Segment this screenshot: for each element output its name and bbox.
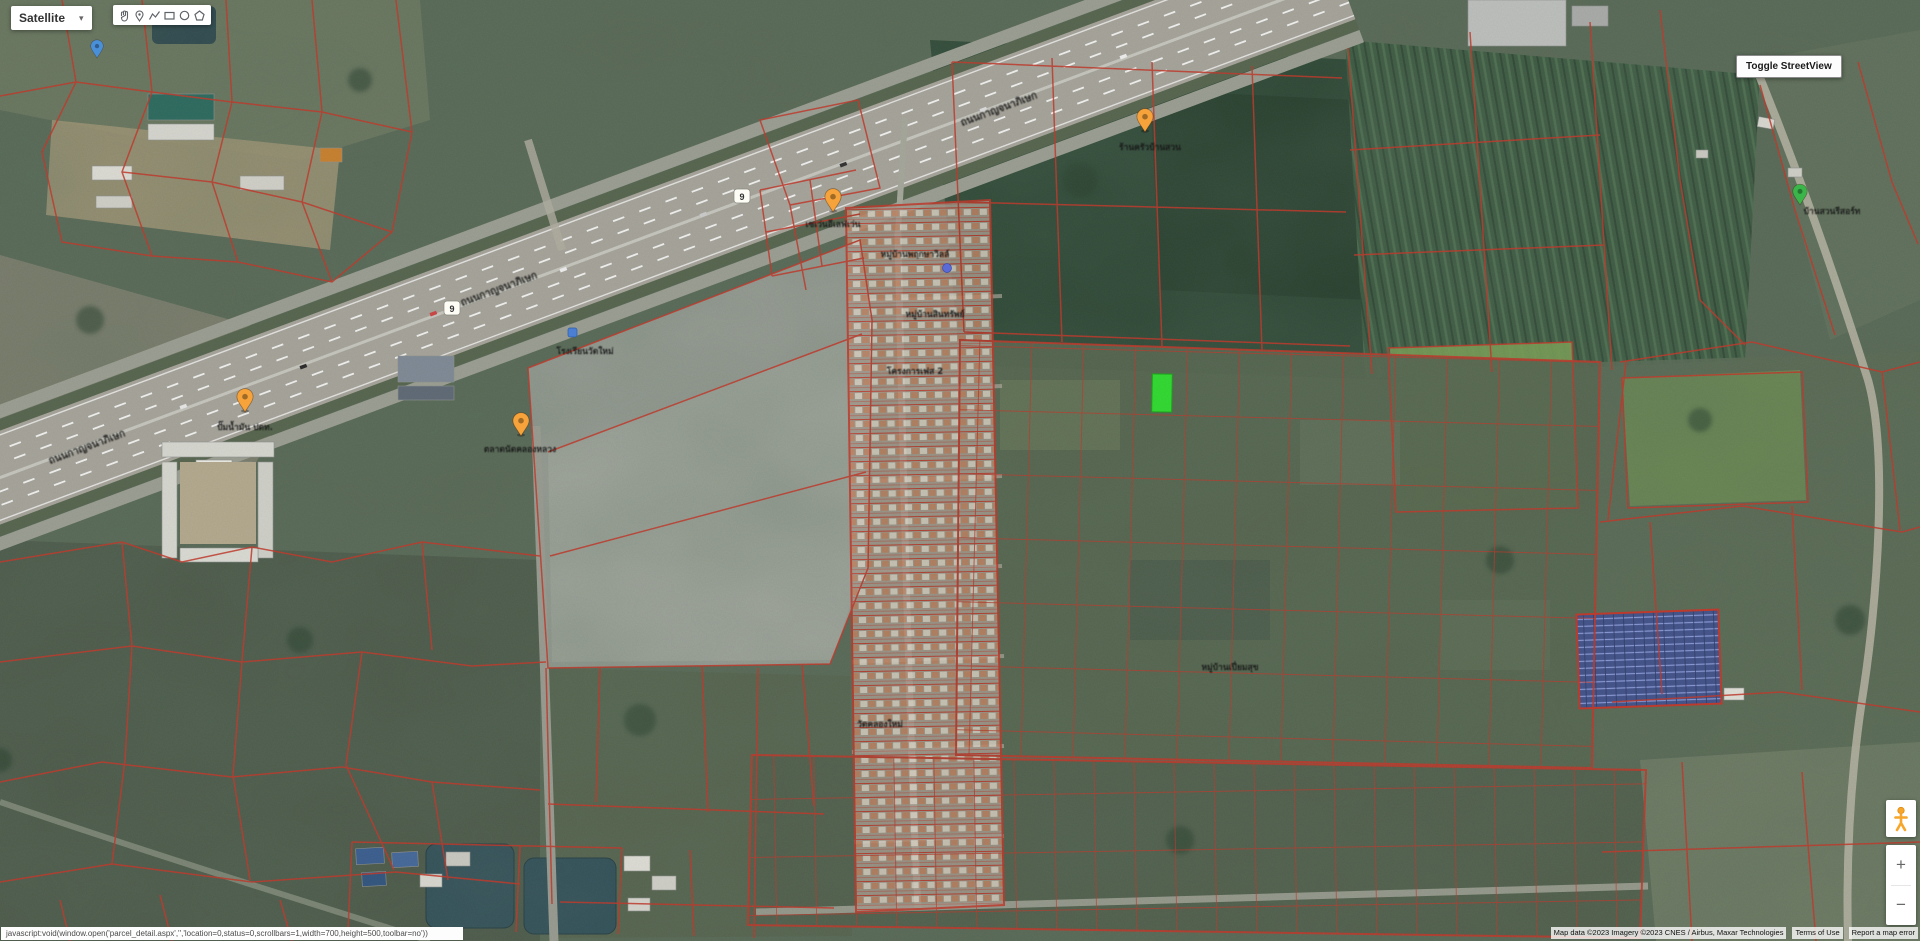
map-type-label: Satellite bbox=[19, 11, 65, 25]
toggle-streetview-button[interactable]: Toggle StreetView bbox=[1736, 55, 1842, 78]
browser-status-bar: javascript:void(window.open('parcel_deta… bbox=[1, 927, 463, 940]
zoom-control: + − bbox=[1886, 845, 1916, 925]
circle-tool-button[interactable] bbox=[177, 6, 192, 24]
drawing-toolbar bbox=[113, 5, 211, 25]
poi-label: โรงเรียนวัดใหม่ bbox=[555, 346, 613, 357]
map-canvas[interactable]: ถนนกาญจนาภิเษก ถนนกาญจนาภิเษก ถนนกาญจนาภ… bbox=[0, 0, 1920, 941]
route-shield-number: 9 bbox=[739, 192, 744, 202]
status-bar-text: javascript:void(window.open('parcel_deta… bbox=[6, 929, 428, 938]
map-data-credit: Map data ©2023 Imagery ©2023 CNES / Airb… bbox=[1551, 927, 1787, 939]
polygon-tool-button[interactable] bbox=[192, 6, 207, 24]
marker-icon bbox=[136, 11, 143, 21]
map-type-dropdown[interactable]: Satellite ▾ bbox=[11, 6, 92, 30]
poi-label: หมู่บ้านพฤกษาวิลล์ bbox=[881, 249, 950, 260]
poi-label: ตลาดนัดคลองหลวง bbox=[484, 444, 556, 455]
rectangle-tool-button[interactable] bbox=[162, 6, 177, 24]
poi-label: บ้านสวนรีสอร์ท bbox=[1804, 206, 1861, 217]
pegman-icon bbox=[1891, 806, 1911, 832]
hand-icon bbox=[122, 11, 128, 21]
marker-tool-button[interactable] bbox=[132, 6, 147, 24]
map-application: ถนนกาญจนาภิเษก ถนนกาญจนาภิเษก ถนนกาญจนาภ… bbox=[0, 0, 1920, 941]
route-shield-number: 9 bbox=[449, 304, 454, 314]
rectangle-icon bbox=[165, 12, 174, 19]
polygon-icon bbox=[195, 11, 204, 20]
pegman-button[interactable] bbox=[1886, 800, 1916, 837]
circle-icon bbox=[180, 11, 188, 19]
zoom-out-button[interactable]: − bbox=[1886, 886, 1916, 926]
chevron-down-icon: ▾ bbox=[79, 14, 84, 23]
transit-poi-icon[interactable] bbox=[943, 264, 952, 273]
poi-label: วัดคลองใหม่ bbox=[857, 719, 903, 730]
toggle-streetview-label: Toggle StreetView bbox=[1746, 61, 1832, 72]
terms-of-use-link[interactable]: Terms of Use bbox=[1792, 927, 1842, 939]
poi-label: เซเว่นอีเลฟเว่น bbox=[806, 219, 861, 230]
pan-hand-tool-button[interactable] bbox=[117, 6, 132, 24]
poi-label: ร้านครัวบ้านสวน bbox=[1119, 142, 1181, 153]
poi-label: หมู่บ้านสินทรัพย์ bbox=[906, 309, 965, 320]
poi-label: โครงการเฟส 2 bbox=[886, 366, 944, 377]
zoom-in-button[interactable]: + bbox=[1886, 845, 1916, 885]
grain bbox=[0, 0, 1920, 941]
report-map-error-link[interactable]: Report a map error bbox=[1849, 927, 1918, 939]
map-attribution: Map data ©2023 Imagery ©2023 CNES / Airb… bbox=[1551, 927, 1918, 939]
polyline-tool-button[interactable] bbox=[147, 6, 162, 24]
school-poi-icon[interactable] bbox=[568, 328, 577, 337]
polyline-icon bbox=[150, 11, 160, 19]
